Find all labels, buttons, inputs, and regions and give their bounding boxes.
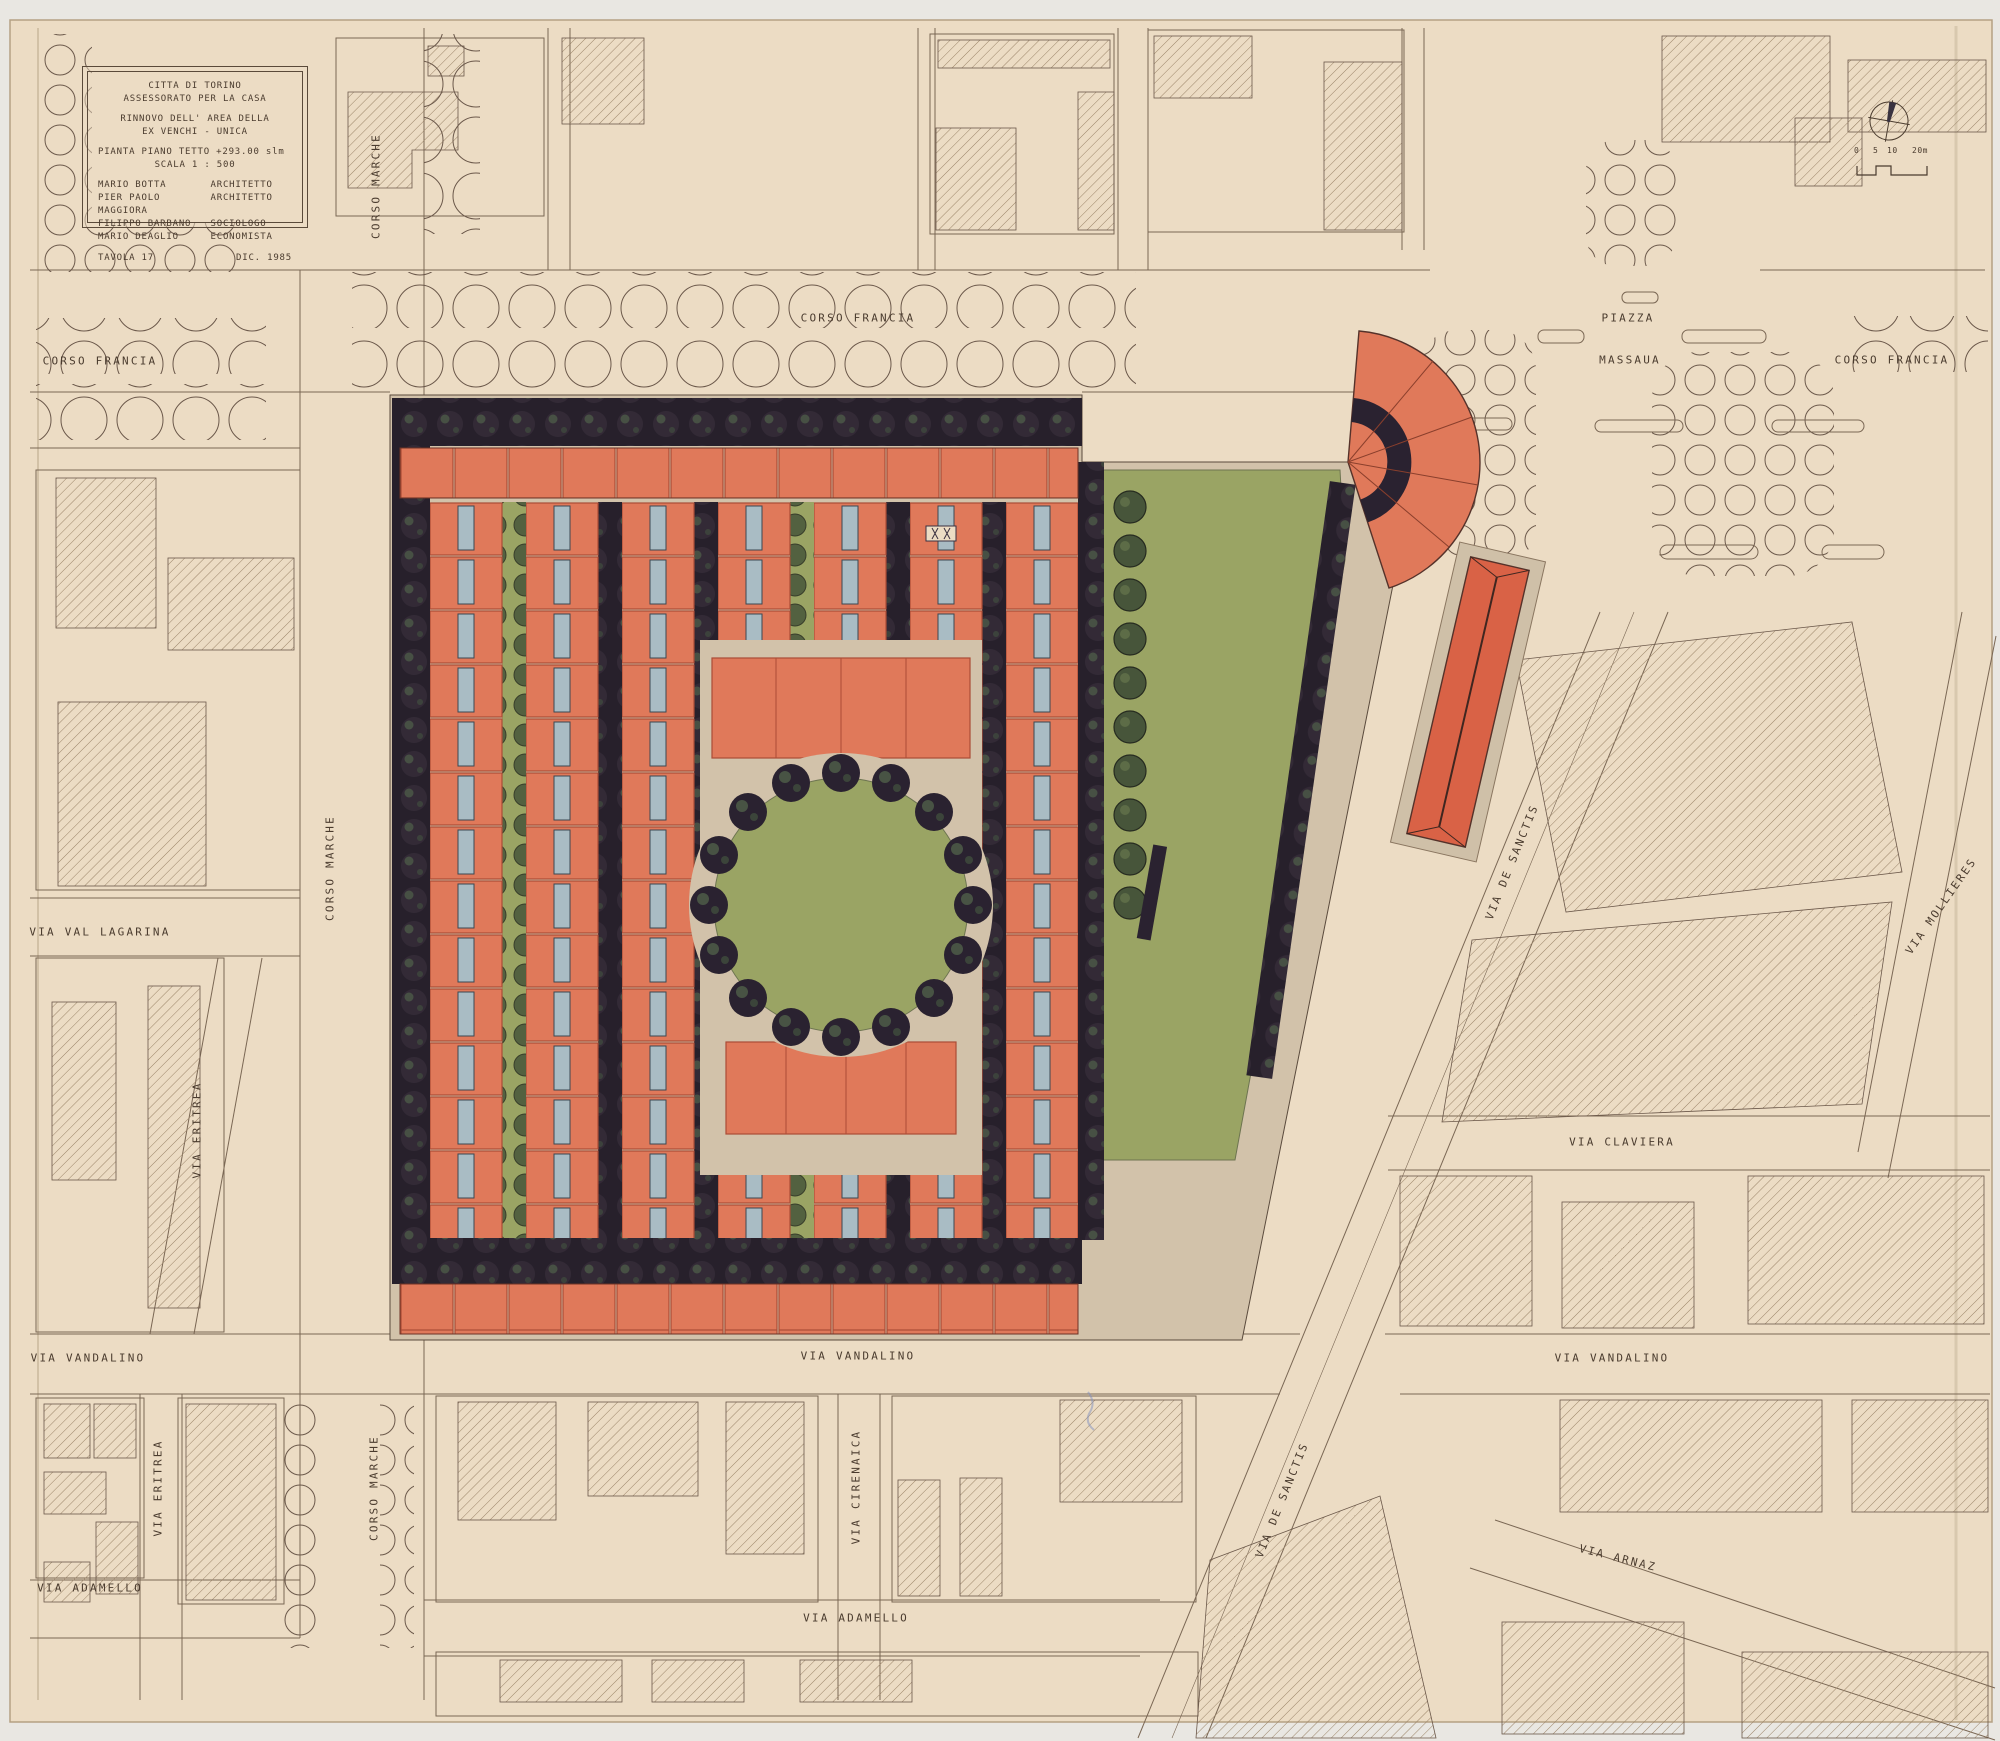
scale-tick-10: 10 <box>1887 146 1898 155</box>
street-label-via-cirenaica: VIA CIRENAICA <box>850 1430 863 1545</box>
tree-band-bottom <box>392 1238 1082 1284</box>
street-label-via-vandalino-left: VIA VANDALINO <box>31 1352 146 1365</box>
credit-role: ECONOMISTA <box>211 231 292 244</box>
street-label-via-adamello-left: VIA ADAMELLO <box>37 1582 143 1595</box>
street-label-corso-marche-mid: CORSO MARCHE <box>324 815 337 921</box>
credit-name: FILIPPO BARBANO <box>98 218 211 231</box>
street-label-corso-marche-bottom: CORSO MARCHE <box>368 1435 381 1541</box>
title-org-line1: CITTA DI TORINO <box>98 80 292 93</box>
credit-name: MARIO DEAGLIO <box>98 231 211 244</box>
scale-tick-0: 0 <box>1854 146 1859 155</box>
site-plan-drawing <box>0 0 2000 1741</box>
title-drawing-line2: SCALA 1 : 500 <box>98 159 292 172</box>
credit-role: ARCHITETTO <box>211 179 292 192</box>
sheet-number: TAVOLA 17 <box>98 252 154 265</box>
scale-tick-5: 5 <box>1873 146 1878 155</box>
court-furniture-icon <box>926 526 956 541</box>
title-credits: MARIO BOTTA ARCHITETTO PIER PAOLO MAGGIO… <box>98 179 292 244</box>
title-block: CITTA DI TORINO ASSESSORATO PER LA CASA … <box>82 66 308 228</box>
street-label-via-val-lagarina: VIA VAL LAGARINA <box>29 926 170 939</box>
title-project-line1: RINNOVO DELL' AREA DELLA <box>98 113 292 126</box>
title-drawing-line1: PIANTA PIANO TETTO +293.00 slm <box>98 146 292 159</box>
scanned-site-plan: CITTA DI TORINO ASSESSORATO PER LA CASA … <box>0 0 2000 1741</box>
street-label-corso-marche-top: CORSO MARCHE <box>370 133 383 239</box>
scale-tick-20: 20m <box>1912 146 1928 155</box>
tree-band-top <box>392 398 1082 446</box>
sheet-date: DIC. 1985 <box>236 252 292 265</box>
scale-bar: 0 5 10 20m <box>1846 146 1942 162</box>
tree-band-right <box>1078 462 1104 1240</box>
street-label-corso-francia-center: CORSO FRANCIA <box>801 312 916 325</box>
street-label-via-claviera: VIA CLAVIERA <box>1569 1136 1675 1149</box>
credit-role: ARCHITETTO <box>211 192 292 218</box>
street-label-via-vandalino-right: VIA VANDALINO <box>1555 1352 1670 1365</box>
street-label-via-vandalino-center: VIA VANDALINO <box>801 1350 916 1363</box>
terrace-row-top <box>400 448 1078 498</box>
street-label-piazza: PIAZZA <box>1602 312 1655 325</box>
street-label-via-eritrea-lower: VIA ERITREA <box>152 1439 165 1536</box>
title-project-line2: EX VENCHI - UNICA <box>98 126 292 139</box>
street-label-corso-francia-left: CORSO FRANCIA <box>43 355 158 368</box>
credit-name: PIER PAOLO MAGGIORA <box>98 192 211 218</box>
terrace-row-bottom <box>400 1284 1078 1334</box>
credit-role: SOCIOLOGO <box>211 218 292 231</box>
street-label-massaua: MASSAUA <box>1599 354 1661 367</box>
street-label-corso-francia-right: CORSO FRANCIA <box>1835 354 1950 367</box>
street-label-via-adamello-center: VIA ADAMELLO <box>803 1612 909 1625</box>
title-org-line2: ASSESSORATO PER LA CASA <box>98 93 292 106</box>
street-label-via-eritrea-upper: VIA ERITREA <box>191 1081 204 1178</box>
tree-band-left <box>392 398 430 1244</box>
credit-name: MARIO BOTTA <box>98 179 211 192</box>
